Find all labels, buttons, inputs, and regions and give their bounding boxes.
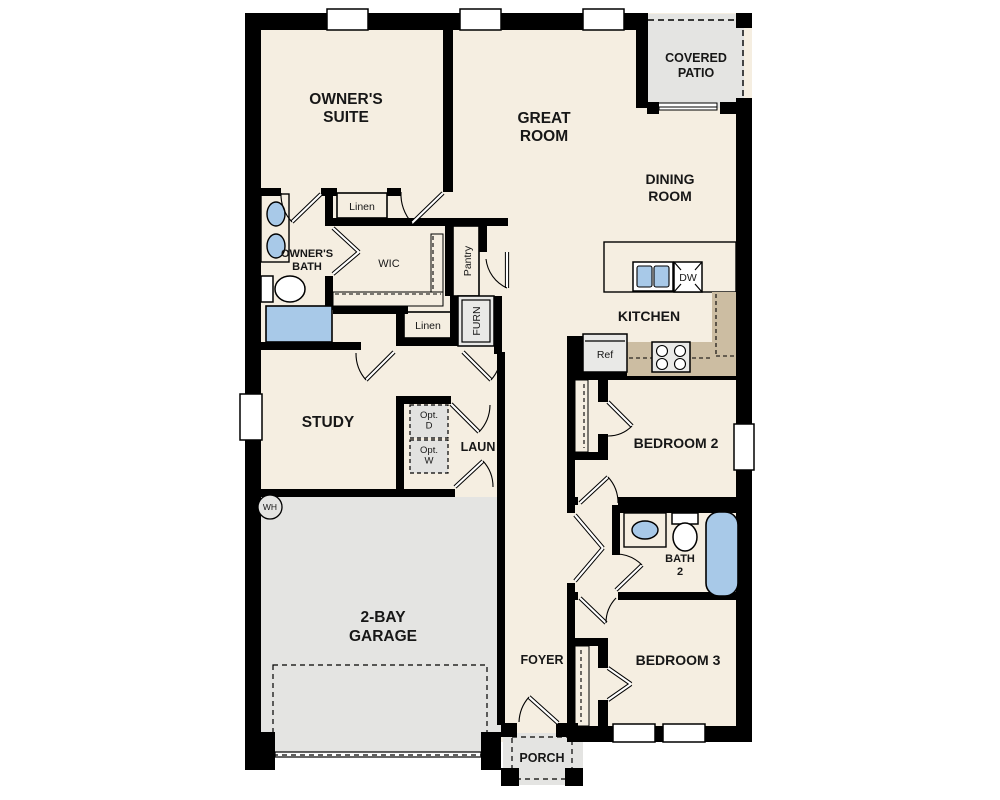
label-study: STUDY xyxy=(302,414,355,431)
wall-closet2-bottom xyxy=(575,452,608,460)
label-refrigerator: Ref xyxy=(597,349,613,361)
wall-seg xyxy=(261,188,281,196)
porch-stub-left xyxy=(501,768,519,786)
burner xyxy=(675,359,686,370)
shower xyxy=(266,306,332,342)
wall-seg xyxy=(479,226,487,252)
label-dining-room: DININGROOM xyxy=(646,171,695,204)
wall-seg xyxy=(598,638,608,668)
wall-bath2-west xyxy=(612,505,620,555)
label-bedroom2: BEDROOM 2 xyxy=(634,435,719,451)
bath2-tub xyxy=(706,512,738,596)
wall-garage-top xyxy=(261,489,455,497)
wall-seg xyxy=(445,226,453,296)
wall-seg xyxy=(325,196,333,226)
toilet-bowl xyxy=(275,276,305,302)
wall-wic-top xyxy=(333,218,443,226)
wall-seg xyxy=(321,188,337,196)
wall-seg xyxy=(494,296,502,354)
wall-seg xyxy=(567,505,575,513)
toilet-tank xyxy=(261,276,273,302)
label-bedroom3: BEDROOM 3 xyxy=(636,652,721,668)
porch-stub-right xyxy=(565,768,583,786)
window-bedroom2 xyxy=(734,424,754,470)
wall-seg xyxy=(567,497,578,505)
patio-bottom-stub-right xyxy=(720,102,738,114)
wall-study-top xyxy=(261,342,361,350)
wall-seg xyxy=(567,592,578,600)
label-pantry: Pantry xyxy=(462,245,474,276)
bath2-sink xyxy=(632,521,658,539)
burner xyxy=(657,346,668,357)
label-linen-2: Linen xyxy=(415,320,441,332)
label-linen-1: Linen xyxy=(349,201,375,213)
wall-hall-east-lower xyxy=(567,583,575,725)
wall-seg xyxy=(387,188,401,196)
wall-hall-west xyxy=(497,352,505,725)
burner xyxy=(675,346,686,357)
window-great-room-2 xyxy=(583,9,624,30)
wall-suite-greatroom xyxy=(443,30,453,192)
garage-bottom-stub-left xyxy=(245,732,275,770)
kitchen-sink-bowl-left xyxy=(637,266,652,287)
patio-left-wall xyxy=(636,13,648,108)
wall-seg xyxy=(396,312,404,338)
foyer-bottom-wall-left xyxy=(501,723,517,737)
wall-hall-east-upper xyxy=(567,372,575,505)
window-owners-suite xyxy=(327,9,368,30)
wall-bedroom2-bottom xyxy=(618,497,736,505)
floor-plan-drawing: OWNER'SSUITE GREATROOM COVEREDPATIO DINI… xyxy=(0,0,1000,800)
label-porch: PORCH xyxy=(519,751,564,765)
wall-bottom-bedroom3 xyxy=(567,726,752,742)
label-water-heater: WH xyxy=(263,502,277,512)
label-great-room: GREATROOM xyxy=(517,110,571,145)
bath2-toilet-bowl xyxy=(673,523,697,551)
sliding-door-panel-2 xyxy=(659,107,717,110)
sliding-door-panel-1 xyxy=(653,103,717,107)
wall-left xyxy=(245,13,261,770)
wall-seg xyxy=(325,276,333,310)
label-kitchen: KITCHEN xyxy=(618,308,680,324)
wall-laundry-west xyxy=(396,396,404,493)
burner xyxy=(657,359,668,370)
wall-seg xyxy=(598,700,608,726)
window-bedroom3-1 xyxy=(613,724,655,742)
label-dishwasher: DW xyxy=(679,272,697,284)
label-foyer: FOYER xyxy=(520,653,563,667)
kitchen-sink-bowl-right xyxy=(654,266,669,287)
window-great-room-1 xyxy=(460,9,501,30)
window-study xyxy=(240,394,262,440)
wall-laundry-top xyxy=(396,396,451,404)
wall-seg xyxy=(598,380,608,402)
garage-bottom-stub-right xyxy=(481,732,501,770)
wall-pantry-top xyxy=(443,218,508,226)
label-furnace: FURN xyxy=(471,306,483,335)
window-bedroom3-2 xyxy=(663,724,705,742)
label-laundry: LAUN xyxy=(461,440,496,454)
label-wic: WIC xyxy=(378,258,399,270)
wall-right xyxy=(736,98,752,742)
garage-door xyxy=(275,752,481,757)
floor-plan-page: OWNER'SSUITE GREATROOM COVEREDPATIO DINI… xyxy=(0,0,1000,800)
patio-bottom-stub-left xyxy=(647,102,659,114)
patio-corner-stub xyxy=(736,13,752,28)
wall-under-linen2 xyxy=(396,338,460,346)
